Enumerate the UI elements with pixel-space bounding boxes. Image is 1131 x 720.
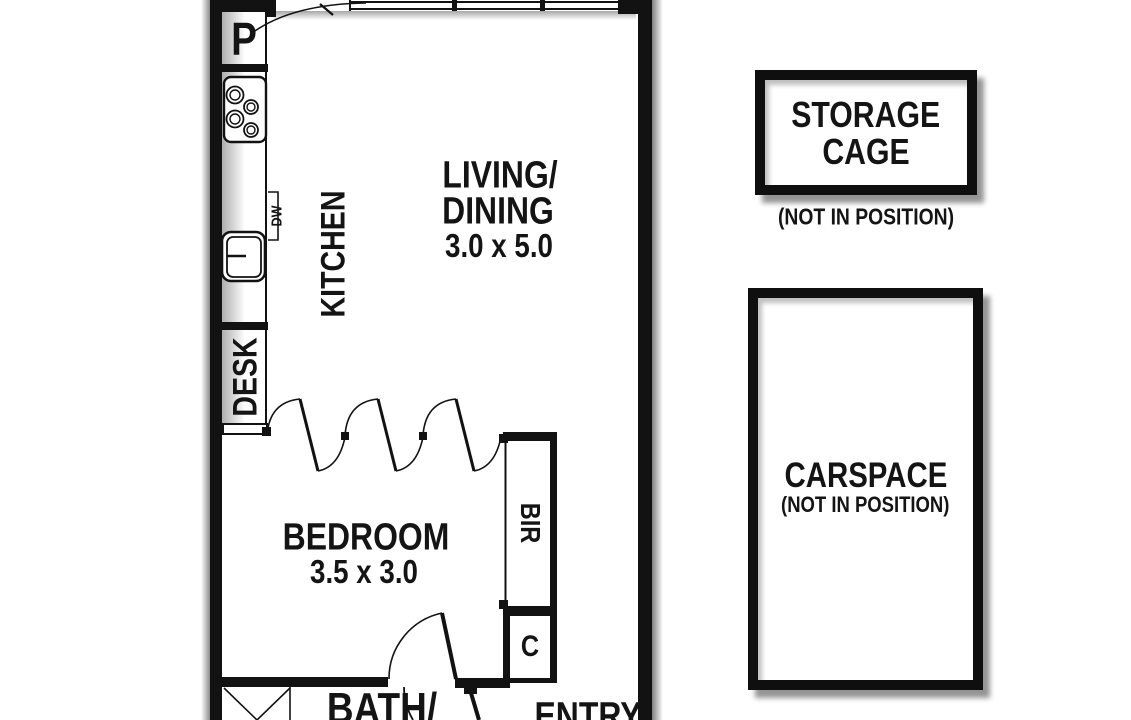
- desk-label: DESK: [227, 337, 266, 416]
- wall-shadows: [201, 0, 663, 720]
- cupboard-label: C: [521, 630, 539, 664]
- bath-label: BATH/: [327, 684, 437, 720]
- storage-cage-label-line1: STORAGE: [792, 96, 941, 133]
- door-jamb: [266, 0, 276, 17]
- door-hinge-block: [464, 680, 477, 694]
- entry-label: ENTRY: [534, 696, 641, 720]
- kitchen-label: KITCHEN: [315, 191, 354, 318]
- carspace-note: (NOT IN POSITION): [781, 492, 949, 518]
- shower-icon: [224, 687, 290, 720]
- right-wall: [638, 0, 652, 720]
- desk-end-cap: [223, 424, 267, 434]
- robe-label: BIR: [514, 503, 546, 544]
- top-left-wall: [210, 0, 272, 12]
- hall-wall: [455, 678, 510, 688]
- dishwasher-label: DW: [269, 206, 286, 227]
- window-icon: [350, 0, 620, 11]
- storage-cage-label-line2: CAGE: [822, 133, 909, 170]
- bedroom-dimensions: 3.5 x 3.0: [310, 553, 418, 591]
- top-right-corner: [618, 0, 652, 14]
- carspace-label: CARSPACE: [784, 460, 947, 492]
- bedroom-door-swing-icon: [389, 613, 456, 679]
- bifold-door-icon: [262, 399, 501, 471]
- walls: [210, 0, 652, 720]
- living-dimensions: 3.0 x 5.0: [445, 227, 553, 265]
- carspace-box: CARSPACE (NOT IN POSITION): [748, 288, 983, 690]
- pantry-label: P: [231, 12, 257, 66]
- storage-cage-note: (NOT IN POSITION): [778, 204, 954, 231]
- sink-icon: [222, 232, 265, 281]
- floor-plan: P DW KITCHEN DESK LIVING/ DINING 3.0 x 5…: [0, 0, 1131, 720]
- storage-cage-box: STORAGE CAGE: [755, 70, 977, 195]
- left-wall: [210, 0, 222, 720]
- stove-icon: [224, 77, 266, 142]
